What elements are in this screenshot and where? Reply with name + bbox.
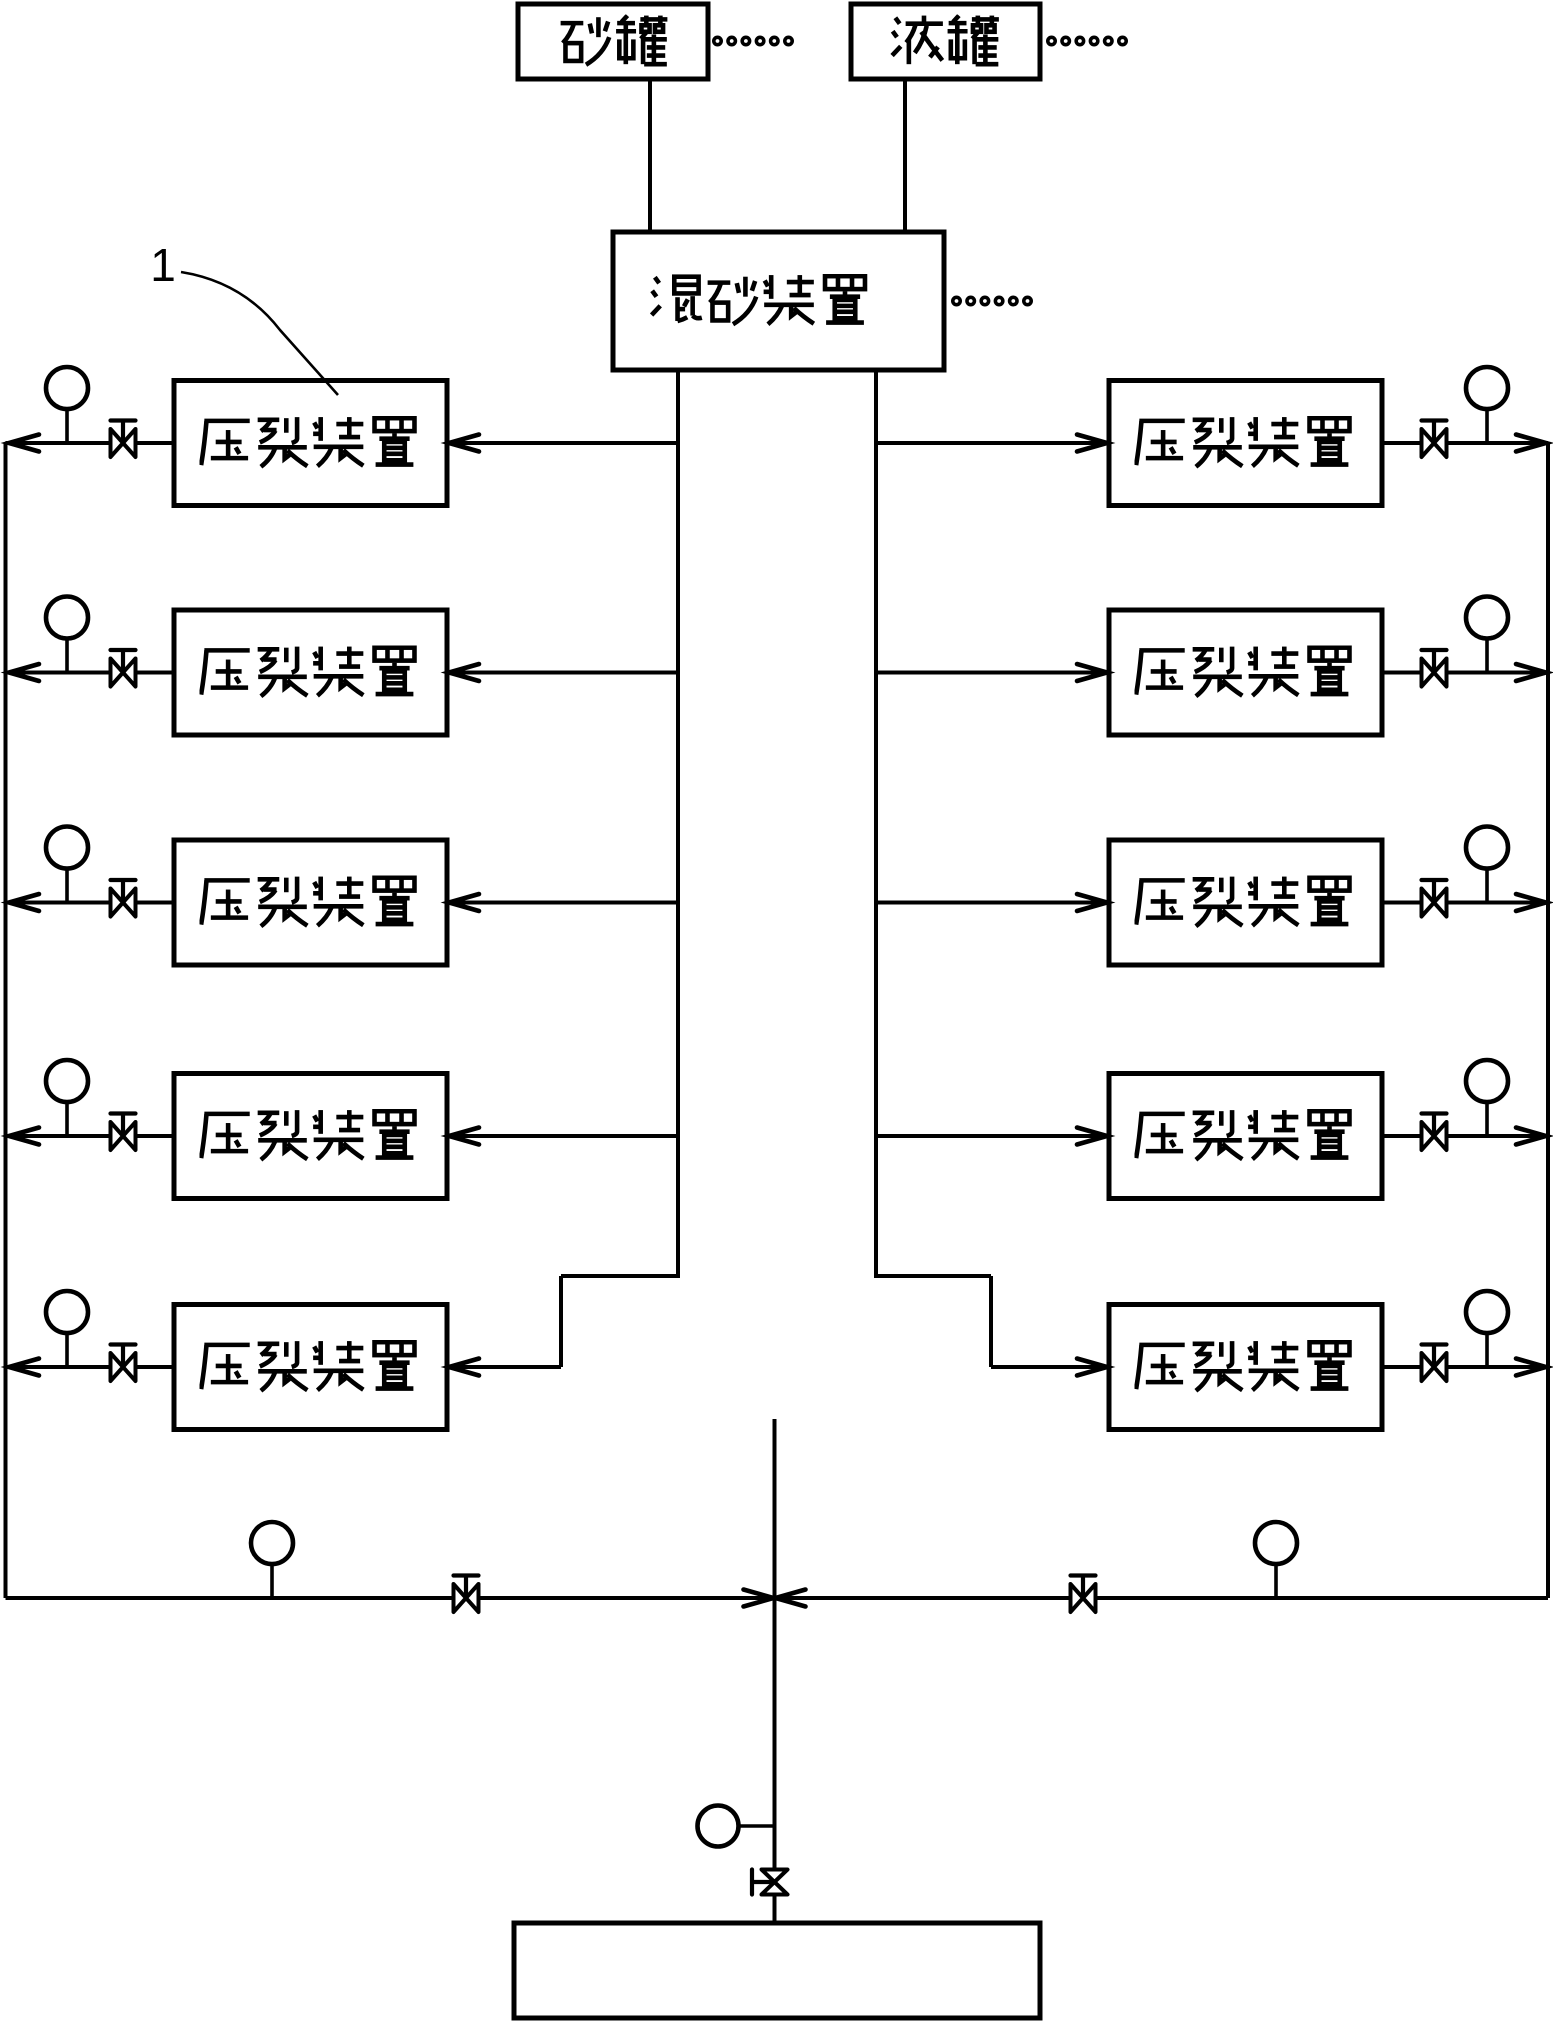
svg-text:1: 1 [150,239,176,291]
